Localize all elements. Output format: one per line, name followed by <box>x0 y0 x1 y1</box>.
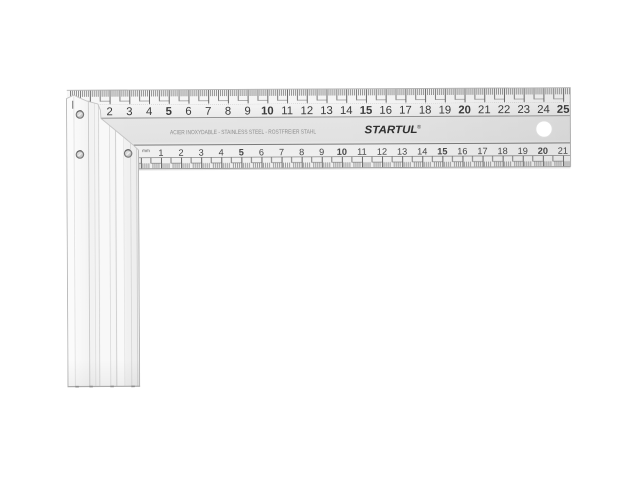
svg-text:11: 11 <box>357 147 367 157</box>
svg-text:15: 15 <box>437 146 447 156</box>
svg-text:STARTUL: STARTUL <box>364 124 417 136</box>
svg-text:10: 10 <box>337 147 347 157</box>
svg-text:9: 9 <box>319 147 324 157</box>
svg-text:10: 10 <box>261 105 274 117</box>
svg-text:14: 14 <box>417 146 427 156</box>
svg-text:8: 8 <box>299 147 304 157</box>
svg-text:4: 4 <box>219 148 224 158</box>
svg-text:21: 21 <box>478 104 491 116</box>
svg-text:25: 25 <box>557 104 570 116</box>
svg-text:24: 24 <box>537 104 550 116</box>
svg-text:17: 17 <box>399 105 412 117</box>
svg-text:17: 17 <box>477 146 487 156</box>
svg-text:14: 14 <box>340 105 353 117</box>
svg-text:18: 18 <box>419 105 432 117</box>
svg-text:3: 3 <box>126 106 132 118</box>
svg-text:22: 22 <box>498 104 511 116</box>
svg-text:20: 20 <box>538 146 548 156</box>
svg-text:13: 13 <box>397 147 407 157</box>
svg-text:21: 21 <box>558 146 568 156</box>
svg-text:mm: mm <box>142 148 150 153</box>
svg-text:3: 3 <box>199 148 204 158</box>
svg-text:8: 8 <box>225 106 231 118</box>
svg-text:7: 7 <box>205 106 211 118</box>
svg-text:23: 23 <box>517 104 530 116</box>
svg-text:19: 19 <box>439 104 452 116</box>
svg-text:5: 5 <box>239 147 244 157</box>
svg-text:2: 2 <box>178 148 183 158</box>
svg-text:ACIER INOXYDABLE - STAINLESS S: ACIER INOXYDABLE - STAINLESS STEEL - ROS… <box>170 129 317 137</box>
svg-text:15: 15 <box>360 105 373 117</box>
svg-text:13: 13 <box>320 105 333 117</box>
svg-text:2: 2 <box>106 106 112 118</box>
svg-text:5: 5 <box>166 106 172 118</box>
svg-text:6: 6 <box>185 106 191 118</box>
svg-text:11: 11 <box>281 105 293 117</box>
svg-text:18: 18 <box>497 146 507 156</box>
svg-text:1: 1 <box>158 148 163 158</box>
svg-text:16: 16 <box>379 105 392 117</box>
svg-text:12: 12 <box>301 105 314 117</box>
svg-text:16: 16 <box>457 146 467 156</box>
svg-text:20: 20 <box>458 104 471 116</box>
svg-text:7: 7 <box>279 147 284 157</box>
svg-text:19: 19 <box>518 146 528 156</box>
svg-text:12: 12 <box>377 147 387 157</box>
svg-text:9: 9 <box>245 105 251 117</box>
svg-text:4: 4 <box>146 106 152 118</box>
svg-text:6: 6 <box>259 147 264 157</box>
svg-text:®: ® <box>417 124 421 131</box>
